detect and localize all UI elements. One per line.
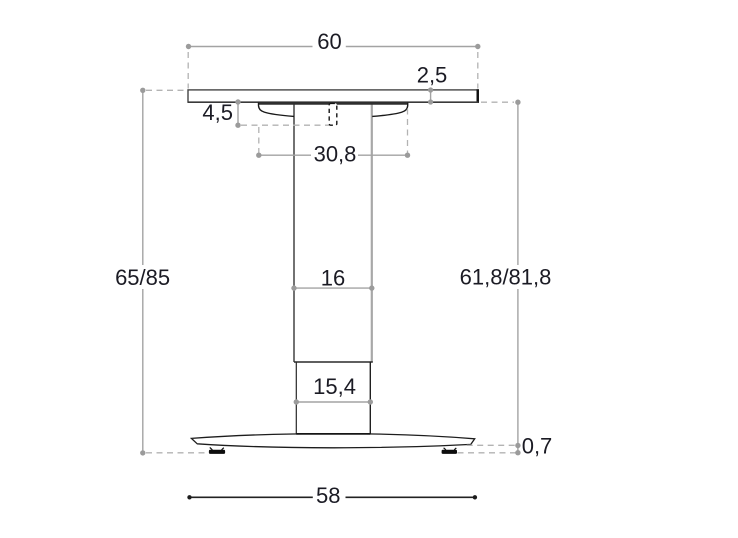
svg-text:15,4: 15,4 bbox=[313, 374, 356, 399]
svg-text:60: 60 bbox=[317, 29, 341, 54]
svg-text:4,5: 4,5 bbox=[202, 100, 233, 125]
svg-text:61,8/81,8: 61,8/81,8 bbox=[460, 265, 552, 290]
svg-text:2,5: 2,5 bbox=[417, 63, 448, 88]
svg-text:0,7: 0,7 bbox=[522, 433, 553, 458]
svg-text:30,8: 30,8 bbox=[314, 142, 357, 167]
svg-text:65/85: 65/85 bbox=[115, 265, 170, 290]
svg-text:58: 58 bbox=[316, 483, 340, 508]
svg-text:16: 16 bbox=[321, 265, 345, 290]
